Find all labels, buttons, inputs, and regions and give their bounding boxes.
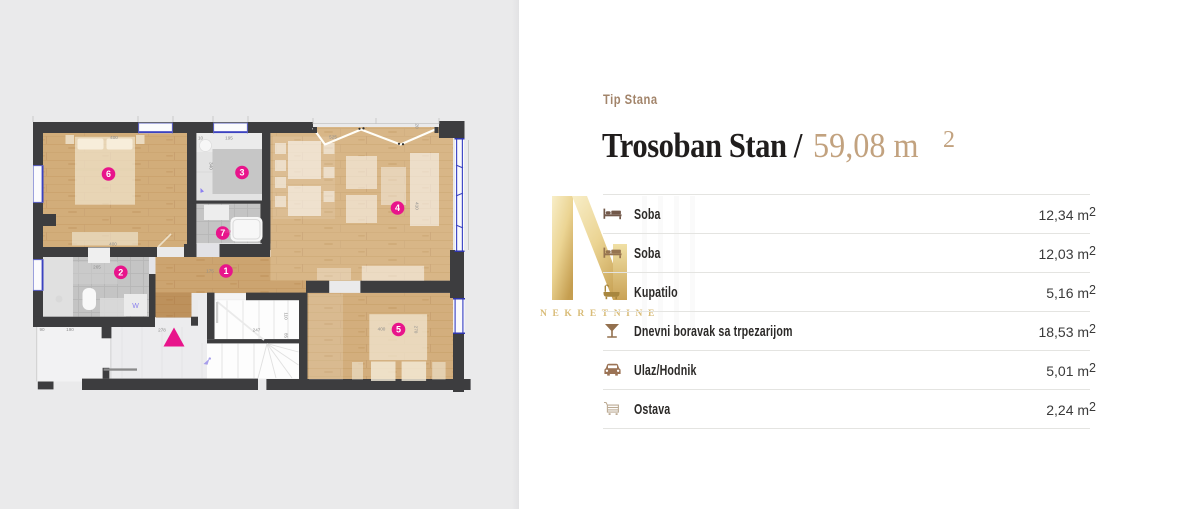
svg-text:2: 2 <box>118 268 123 278</box>
svg-text:90: 90 <box>39 327 45 332</box>
svg-text:278: 278 <box>158 328 166 333</box>
svg-text:247: 247 <box>253 328 261 333</box>
svg-text:110: 110 <box>284 312 289 320</box>
svg-text:165: 165 <box>225 230 231 234</box>
svg-text:10: 10 <box>198 136 204 141</box>
svg-text:265: 265 <box>93 265 101 270</box>
svg-text:410: 410 <box>415 202 420 210</box>
svg-text:525: 525 <box>329 135 337 140</box>
svg-text:20: 20 <box>415 123 420 129</box>
svg-text:3: 3 <box>239 168 244 178</box>
svg-text:1: 1 <box>223 266 228 276</box>
svg-text:W: W <box>132 303 139 310</box>
svg-text:175: 175 <box>206 269 214 274</box>
svg-text:270: 270 <box>414 326 419 334</box>
svg-text:340: 340 <box>209 162 214 170</box>
svg-text:195: 195 <box>225 136 233 141</box>
svg-text:400: 400 <box>109 242 117 247</box>
svg-text:85: 85 <box>284 333 289 339</box>
svg-text:400: 400 <box>378 327 386 332</box>
svg-text:5: 5 <box>396 325 401 335</box>
svg-text:4: 4 <box>395 203 400 213</box>
svg-text:400: 400 <box>110 135 118 140</box>
svg-text:6: 6 <box>106 169 111 179</box>
svg-text:190: 190 <box>66 327 74 332</box>
